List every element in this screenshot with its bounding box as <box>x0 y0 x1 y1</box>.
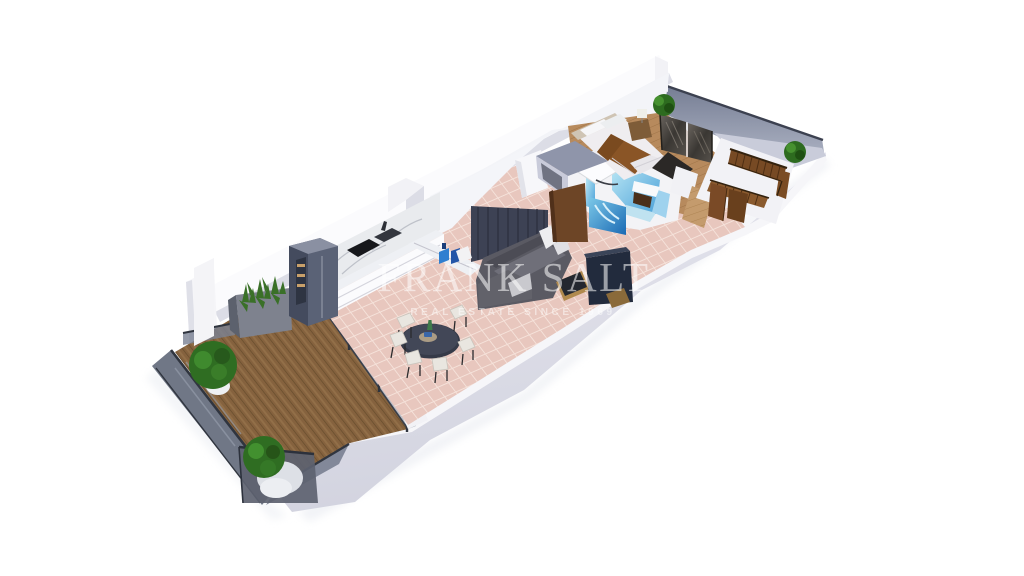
svg-text:REAL ESTATE SINCE 1969: REAL ESTATE SINCE 1969 <box>410 307 615 318</box>
svg-text:FRANK SALT: FRANK SALT <box>378 254 651 300</box>
